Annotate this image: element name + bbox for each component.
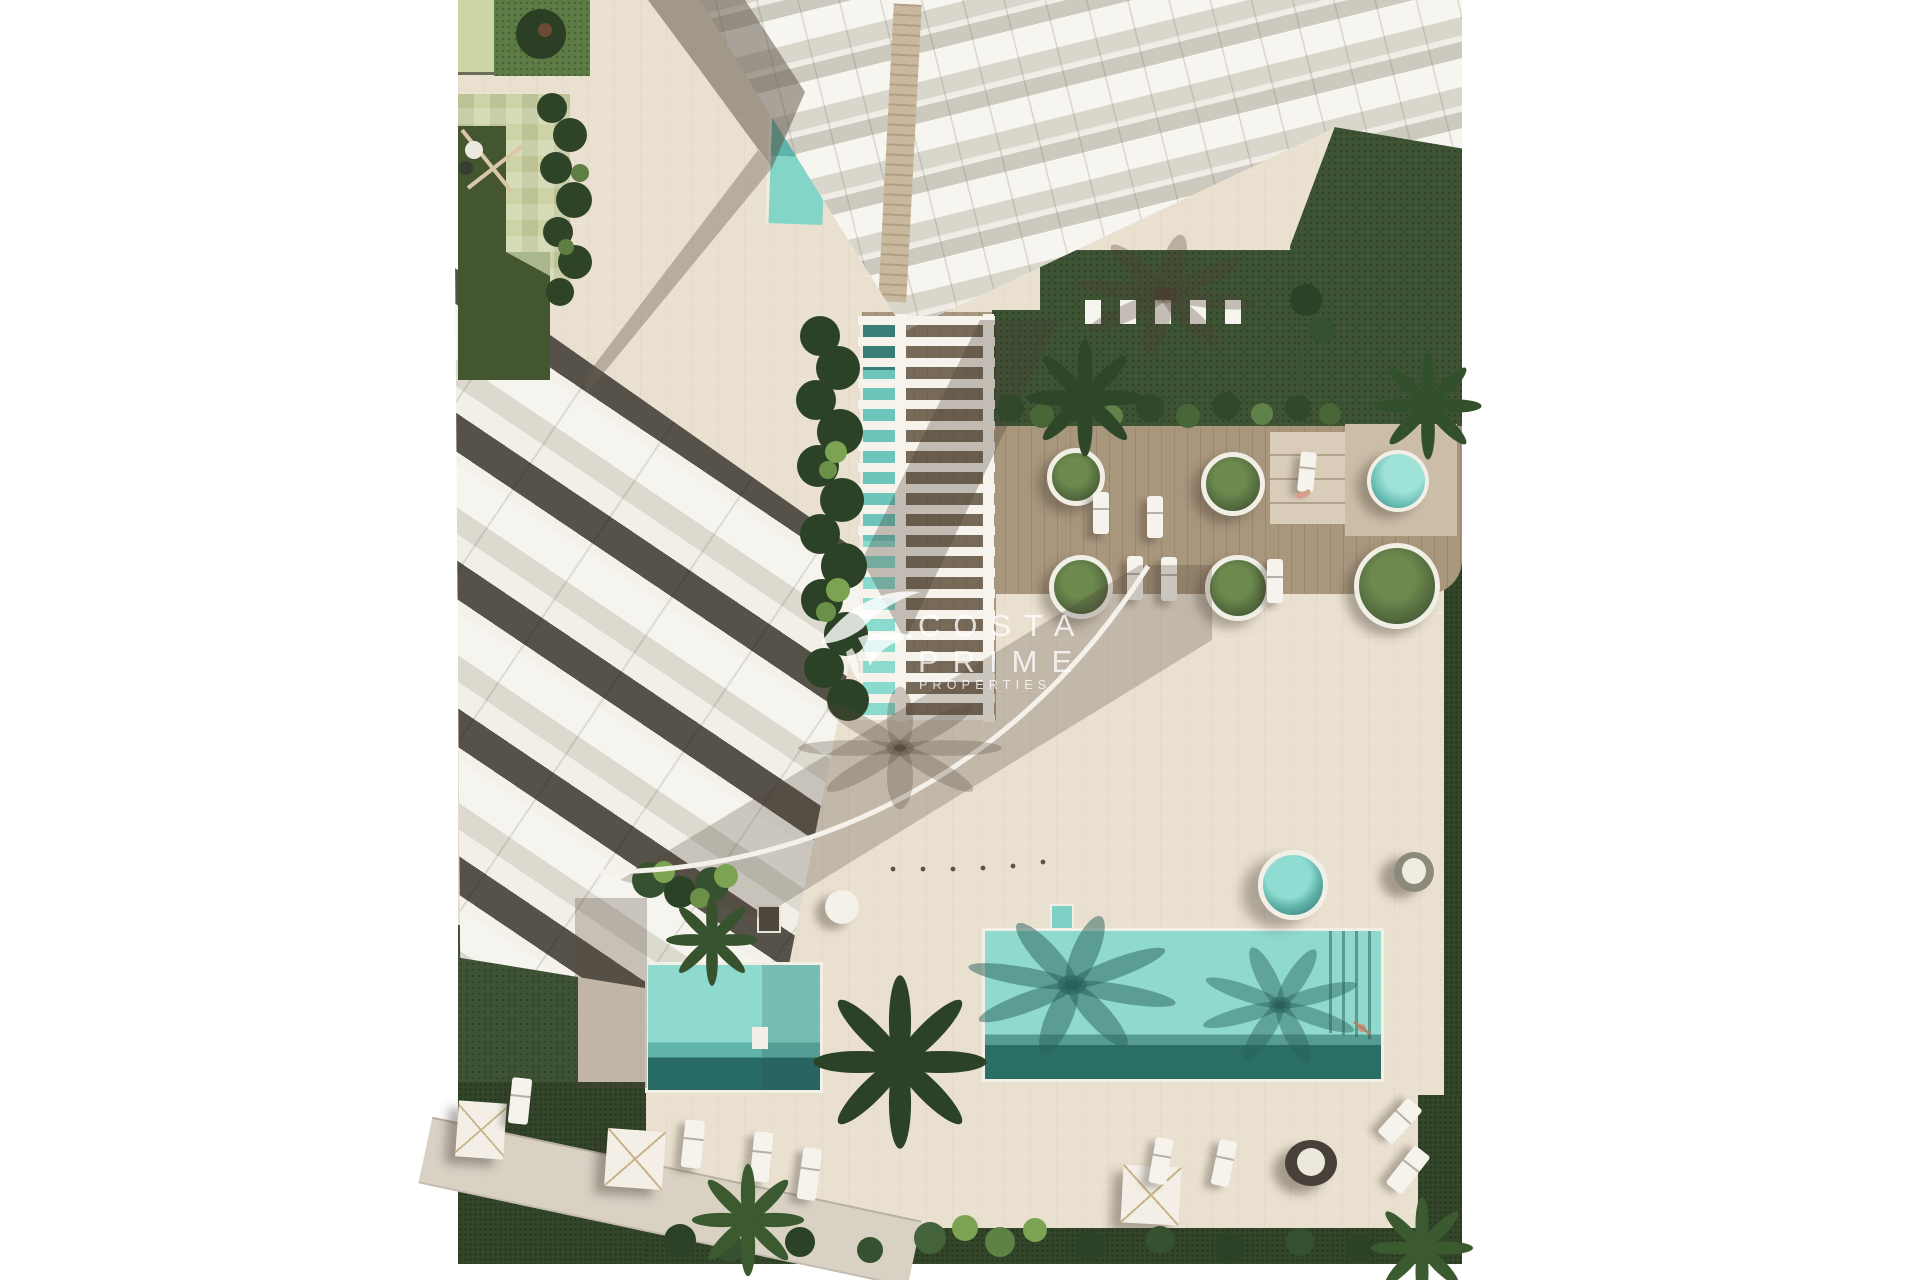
left-pool-shadow — [762, 965, 820, 1090]
left-pool-step — [752, 1027, 768, 1049]
planter — [1201, 452, 1265, 516]
grass-square — [494, 0, 590, 76]
tower-pillar — [1190, 300, 1206, 324]
sun-lounger — [1147, 496, 1163, 538]
parasol — [604, 1128, 666, 1190]
main-pool — [982, 928, 1384, 1082]
watermark-line2: PRIME — [918, 646, 1086, 677]
pool-step-basin — [1050, 904, 1074, 930]
seagull-icon — [818, 586, 922, 682]
square-seat — [757, 905, 781, 933]
tower-pillar — [1085, 300, 1101, 324]
chair-cushion — [1297, 1148, 1325, 1176]
tower-pillar — [1120, 300, 1136, 324]
sun-lounger — [1093, 492, 1109, 534]
left-pool — [645, 962, 823, 1093]
round-table — [825, 890, 859, 924]
render-image: COSTA PRIME PROPERTIES — [0, 0, 1920, 1280]
round-chair — [1285, 1140, 1337, 1186]
watermark-line1: COSTA — [918, 610, 1088, 641]
jacuzzi — [1258, 850, 1328, 920]
daybed-cushion — [1402, 858, 1426, 884]
plunge-pool — [1367, 450, 1429, 512]
pool-shadow-line — [1342, 931, 1345, 1035]
round-daybed — [1394, 852, 1434, 892]
parasol — [455, 1100, 507, 1159]
watermark-line3: PROPERTIES — [919, 679, 1051, 692]
tower-pillar — [1225, 300, 1241, 324]
pool-shadow-line — [1329, 931, 1332, 1033]
watermark: COSTA PRIME PROPERTIES — [818, 578, 1518, 708]
bottom-right-lawn — [1418, 1095, 1462, 1264]
pool-shadow-line — [1368, 931, 1371, 1039]
pool-shadow-line — [1355, 931, 1358, 1037]
tower-pillar — [1155, 300, 1171, 324]
